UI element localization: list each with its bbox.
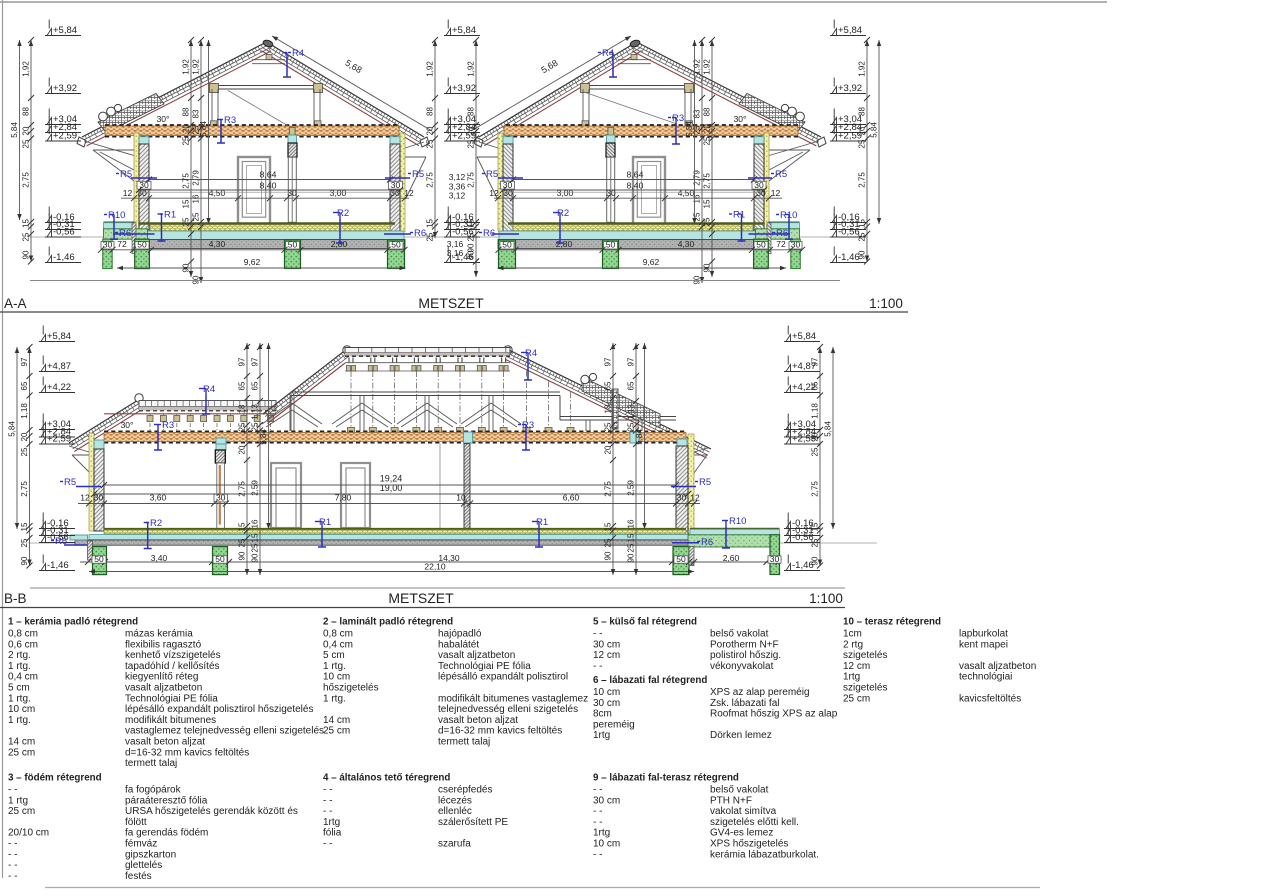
svg-text:R2: R2 xyxy=(557,208,569,219)
svg-text:R2: R2 xyxy=(150,518,162,529)
svg-text:72: 72 xyxy=(776,239,786,249)
svg-text:5,84: 5,84 xyxy=(199,121,208,137)
svg-text:10: 10 xyxy=(456,493,466,503)
svg-text:+4,22: +4,22 xyxy=(792,382,816,393)
svg-text:flexibilis ragasztó: flexibilis ragasztó xyxy=(125,639,202,650)
svg-text:1,18: 1,18 xyxy=(20,403,29,419)
svg-text:vastaglemez telejnedvesség ell: vastaglemez telejnedvesség elleni sziget… xyxy=(125,726,324,737)
svg-text:97: 97 xyxy=(604,357,613,366)
svg-text:83: 83 xyxy=(693,109,702,118)
svg-text:30: 30 xyxy=(606,188,616,198)
svg-text:30: 30 xyxy=(391,180,401,190)
svg-text:25 cm: 25 cm xyxy=(843,693,870,704)
svg-text:2,75: 2,75 xyxy=(182,173,191,189)
svg-text:4,30: 4,30 xyxy=(209,239,226,249)
svg-text:15: 15 xyxy=(604,522,613,531)
svg-text:3,40: 3,40 xyxy=(151,553,168,563)
svg-text:25: 25 xyxy=(22,139,31,148)
svg-text:15: 15 xyxy=(20,522,29,531)
svg-text:30°: 30° xyxy=(734,114,747,124)
svg-text:25: 25 xyxy=(251,543,260,552)
svg-text:2,75: 2,75 xyxy=(811,481,820,497)
svg-text:15: 15 xyxy=(627,533,636,542)
svg-text:30: 30 xyxy=(94,493,104,503)
svg-text:+5,84: +5,84 xyxy=(838,25,862,36)
svg-text:16: 16 xyxy=(251,519,260,528)
svg-text:65: 65 xyxy=(20,381,29,390)
svg-text:10 cm: 10 cm xyxy=(593,839,620,850)
svg-text:10 cm: 10 cm xyxy=(8,704,35,715)
svg-text:9,62: 9,62 xyxy=(244,257,261,267)
svg-text:15: 15 xyxy=(238,522,247,531)
svg-text:50: 50 xyxy=(391,240,401,250)
svg-text:20: 20 xyxy=(604,445,613,454)
svg-text:50: 50 xyxy=(215,554,225,564)
svg-text:8,40: 8,40 xyxy=(627,181,644,191)
svg-text:88: 88 xyxy=(426,107,435,116)
svg-text:termett talaj: termett talaj xyxy=(125,758,177,769)
svg-text:50: 50 xyxy=(137,240,147,250)
svg-text:d=16-32 mm kavics feltöltés: d=16-32 mm kavics feltöltés xyxy=(438,726,562,737)
svg-text:3,16: 3,16 xyxy=(447,248,464,258)
svg-text:5,84: 5,84 xyxy=(8,421,17,437)
svg-text:1,92: 1,92 xyxy=(467,61,476,77)
svg-text:2,60: 2,60 xyxy=(723,553,740,563)
svg-text:fölött: fölött xyxy=(125,817,147,828)
svg-text:25: 25 xyxy=(627,543,636,552)
svg-text:12: 12 xyxy=(123,188,133,198)
svg-text:METSZET: METSZET xyxy=(388,590,454,606)
svg-text:+2,59: +2,59 xyxy=(792,434,816,445)
svg-text:1,92: 1,92 xyxy=(858,61,867,77)
svg-text:gipszkarton: gipszkarton xyxy=(125,849,176,860)
svg-text:2 rtg: 2 rtg xyxy=(843,639,863,650)
svg-text:88: 88 xyxy=(703,107,712,116)
svg-text:-0,56: -0,56 xyxy=(53,227,75,238)
svg-text:0,4 cm: 0,4 cm xyxy=(8,672,38,683)
svg-text:R5: R5 xyxy=(486,169,498,180)
svg-text:2,80: 2,80 xyxy=(556,239,573,249)
svg-text:83: 83 xyxy=(192,109,201,118)
svg-text:22,10: 22,10 xyxy=(424,562,446,572)
svg-text:2,75: 2,75 xyxy=(20,481,29,497)
svg-text:5,84: 5,84 xyxy=(10,122,19,138)
svg-text:25 cm: 25 cm xyxy=(323,726,350,737)
svg-text:3,00: 3,00 xyxy=(557,188,574,198)
svg-text:R2: R2 xyxy=(337,208,349,219)
svg-text:2,75: 2,75 xyxy=(22,172,31,188)
svg-text:fa gerendás födém: fa gerendás födém xyxy=(125,828,208,839)
svg-text:glettelés: glettelés xyxy=(125,860,162,871)
svg-text:25: 25 xyxy=(238,538,247,547)
svg-text:12: 12 xyxy=(690,493,700,503)
svg-text:16: 16 xyxy=(192,194,201,203)
svg-text:-1,46: -1,46 xyxy=(47,560,69,571)
svg-text:30: 30 xyxy=(754,180,764,190)
svg-text:72: 72 xyxy=(117,239,127,249)
svg-text:R3: R3 xyxy=(522,420,534,431)
svg-text:90: 90 xyxy=(251,553,260,562)
svg-text:R3: R3 xyxy=(672,113,684,124)
svg-text:10 – terasz rétegrend: 10 – terasz rétegrend xyxy=(843,617,941,628)
svg-text:-0,56: -0,56 xyxy=(792,532,814,543)
svg-text:vasalt aljzatbeton: vasalt aljzatbeton xyxy=(959,661,1036,672)
svg-text:3 – födém rétegrend: 3 – födém rétegrend xyxy=(8,773,102,784)
svg-text:vasalt aljzatbeton: vasalt aljzatbeton xyxy=(125,683,202,694)
svg-text:0,4 cm: 0,4 cm xyxy=(323,639,353,650)
svg-text:20: 20 xyxy=(238,445,247,454)
svg-text:12: 12 xyxy=(80,493,90,503)
svg-text:3,12: 3,12 xyxy=(449,191,466,201)
svg-text:-1,46: -1,46 xyxy=(53,252,75,263)
svg-text:R4: R4 xyxy=(292,48,304,59)
svg-text:3,00: 3,00 xyxy=(330,188,347,198)
svg-text:5,84: 5,84 xyxy=(870,122,879,138)
svg-text:R10: R10 xyxy=(729,516,746,527)
svg-text:0,8 cm: 0,8 cm xyxy=(323,629,353,640)
svg-text:URSA hőszigetelés gerendák köz: URSA hőszigetelés gerendák között és xyxy=(125,806,298,817)
svg-text:0,6 cm: 0,6 cm xyxy=(8,639,38,650)
svg-text:15: 15 xyxy=(426,219,435,228)
svg-text:R4: R4 xyxy=(525,348,537,359)
svg-text:R5: R5 xyxy=(775,169,787,180)
svg-text:belső vakolat: belső vakolat xyxy=(710,629,769,640)
svg-text:4,30: 4,30 xyxy=(678,239,695,249)
svg-text:lépésálló expandált polisztiro: lépésálló expandált polisztirol hősziget… xyxy=(125,704,313,715)
svg-text:2,75: 2,75 xyxy=(238,481,247,497)
svg-text:5,84: 5,84 xyxy=(824,421,833,437)
svg-text:- -: - - xyxy=(593,806,602,817)
svg-text:97: 97 xyxy=(627,357,636,366)
svg-text:90: 90 xyxy=(238,551,247,560)
svg-text:R6: R6 xyxy=(701,537,713,548)
svg-text:12 cm: 12 cm xyxy=(593,650,620,661)
svg-text:25: 25 xyxy=(20,538,29,547)
svg-text:lapburkolat: lapburkolat xyxy=(959,629,1008,640)
svg-text:- -: - - xyxy=(593,629,602,640)
svg-text:B-B: B-B xyxy=(4,591,27,606)
svg-text:90: 90 xyxy=(693,275,702,284)
svg-text:90: 90 xyxy=(192,275,201,284)
svg-text:Zsk. lábazati fal: Zsk. lábazati fal xyxy=(710,698,779,709)
svg-text:18: 18 xyxy=(238,404,247,413)
svg-text:1,92: 1,92 xyxy=(703,59,712,75)
svg-text:PTH N+F: PTH N+F xyxy=(710,795,752,806)
svg-text:1:100: 1:100 xyxy=(809,591,843,606)
svg-text:20: 20 xyxy=(703,124,712,133)
svg-text:30: 30 xyxy=(677,493,687,503)
svg-text:R1: R1 xyxy=(536,517,548,528)
svg-text:12 cm: 12 cm xyxy=(843,661,870,672)
svg-text:1,13: 1,13 xyxy=(251,404,260,420)
svg-text:+5,84: +5,84 xyxy=(792,331,816,342)
svg-text:termett talaj: termett talaj xyxy=(438,737,490,748)
svg-text:1rtg: 1rtg xyxy=(843,672,860,683)
svg-text:30 cm: 30 cm xyxy=(593,639,620,650)
svg-text:30: 30 xyxy=(103,240,113,250)
svg-text:-1,46: -1,46 xyxy=(792,560,814,571)
svg-text:hajópadló: hajópadló xyxy=(438,629,482,640)
svg-text:50: 50 xyxy=(606,240,616,250)
svg-text:12: 12 xyxy=(771,188,781,198)
svg-text:25: 25 xyxy=(426,139,435,148)
svg-text:2,79: 2,79 xyxy=(192,170,201,186)
svg-text:50: 50 xyxy=(94,554,104,564)
svg-text:tapadóhíd / kellősítés: tapadóhíd / kellősítés xyxy=(125,661,220,672)
svg-text:fa fogópárok: fa fogópárok xyxy=(125,785,182,796)
svg-text:15: 15 xyxy=(22,219,31,228)
svg-text:6 – lábazati fal rétegrend: 6 – lábazati fal rétegrend xyxy=(593,675,707,686)
svg-text:fólia: fólia xyxy=(323,828,342,839)
svg-text:1:100: 1:100 xyxy=(869,296,903,311)
svg-text:1 rtg.: 1 rtg. xyxy=(8,693,31,704)
svg-text:50: 50 xyxy=(676,554,686,564)
svg-text:90: 90 xyxy=(182,263,191,272)
svg-text:5 – külső fal rétegrend: 5 – külső fal rétegrend xyxy=(593,617,697,628)
svg-text:+3,92: +3,92 xyxy=(452,83,476,94)
svg-text:- -: - - xyxy=(323,785,332,796)
svg-text:kiegyenlítő réteg: kiegyenlítő réteg xyxy=(125,672,198,683)
svg-text:65: 65 xyxy=(238,381,247,390)
svg-text:- -: - - xyxy=(593,849,602,860)
svg-text:GV4-es lemez: GV4-es lemez xyxy=(710,828,773,839)
svg-text:19,24: 19,24 xyxy=(380,474,403,484)
svg-text:1 rtg: 1 rtg xyxy=(8,795,28,806)
svg-text:R4: R4 xyxy=(203,384,215,395)
svg-text:R10: R10 xyxy=(108,210,125,221)
svg-text:2,79: 2,79 xyxy=(693,170,702,186)
svg-text:+5,84: +5,84 xyxy=(452,25,476,36)
svg-text:50: 50 xyxy=(288,240,298,250)
svg-text:+3,92: +3,92 xyxy=(53,83,77,94)
svg-text:65: 65 xyxy=(604,381,613,390)
svg-text:25: 25 xyxy=(182,136,191,145)
svg-text:2,59: 2,59 xyxy=(251,480,260,496)
svg-text:5,84: 5,84 xyxy=(259,429,268,445)
svg-text:páraáteresztő fólia: páraáteresztő fólia xyxy=(125,795,208,806)
svg-text:8,64: 8,64 xyxy=(260,170,277,180)
svg-text:12: 12 xyxy=(404,188,414,198)
svg-text:1 rtg.: 1 rtg. xyxy=(8,661,31,672)
svg-text:- -: - - xyxy=(8,785,17,796)
svg-text:+5,84: +5,84 xyxy=(53,25,77,36)
svg-text:10 cm: 10 cm xyxy=(323,672,350,683)
svg-text:20: 20 xyxy=(20,432,29,441)
svg-text:97: 97 xyxy=(238,357,247,366)
svg-text:habalátét: habalátét xyxy=(438,639,479,650)
svg-text:belső vakolat: belső vakolat xyxy=(710,785,769,796)
svg-text:65: 65 xyxy=(627,381,636,390)
svg-text:vasalt beton aljzat: vasalt beton aljzat xyxy=(125,737,205,748)
svg-text:- -: - - xyxy=(593,817,602,828)
svg-text:A-A: A-A xyxy=(4,296,27,311)
svg-text:14 cm: 14 cm xyxy=(8,737,35,748)
svg-text:2,75: 2,75 xyxy=(858,172,867,188)
svg-text:R3: R3 xyxy=(162,420,174,431)
svg-text:R5: R5 xyxy=(699,477,711,488)
svg-text:30 cm: 30 cm xyxy=(593,698,620,709)
svg-text:+4,87: +4,87 xyxy=(47,361,71,372)
svg-text:- -: - - xyxy=(8,860,17,871)
svg-text:lécezés: lécezés xyxy=(438,795,472,806)
svg-text:30°: 30° xyxy=(157,114,170,124)
svg-text:XPS hőszigetelés: XPS hőszigetelés xyxy=(710,839,788,850)
svg-text:2,75: 2,75 xyxy=(426,172,435,188)
svg-text:1rtg: 1rtg xyxy=(593,730,610,741)
svg-text:-0,56: -0,56 xyxy=(838,227,860,238)
svg-text:vasalt beton aljzat: vasalt beton aljzat xyxy=(438,715,518,726)
svg-text:90: 90 xyxy=(703,263,712,272)
svg-text:Roofmat hőszig XPS az alap: Roofmat hőszig XPS az alap xyxy=(710,709,838,720)
svg-text:szigetelés: szigetelés xyxy=(843,650,887,661)
svg-text:25: 25 xyxy=(238,422,247,431)
svg-text:2,75: 2,75 xyxy=(467,172,476,188)
svg-text:R1: R1 xyxy=(733,210,745,221)
svg-text:2,80: 2,80 xyxy=(331,239,348,249)
svg-text:2,75: 2,75 xyxy=(604,481,613,497)
svg-text:25: 25 xyxy=(604,538,613,547)
svg-text:25: 25 xyxy=(811,447,820,456)
svg-text:25: 25 xyxy=(22,232,31,241)
svg-text:4,50: 4,50 xyxy=(209,188,226,198)
svg-text:METSZET: METSZET xyxy=(418,295,484,311)
svg-text:7,80: 7,80 xyxy=(335,493,352,503)
svg-text:88: 88 xyxy=(182,107,191,116)
svg-text:-1,46: -1,46 xyxy=(838,252,860,263)
svg-text:90: 90 xyxy=(627,553,636,562)
svg-text:1,92: 1,92 xyxy=(426,61,435,77)
svg-text:2 rtg.: 2 rtg. xyxy=(8,650,31,661)
svg-text:d=16-32 mm kavics feltöltés: d=16-32 mm kavics feltöltés xyxy=(125,747,249,758)
svg-text:R3: R3 xyxy=(224,115,236,126)
svg-text:+5,84: +5,84 xyxy=(47,331,71,342)
svg-text:kerámia lábazatburkolat.: kerámia lábazatburkolat. xyxy=(710,849,819,860)
svg-text:R1: R1 xyxy=(319,517,331,528)
svg-text:R5: R5 xyxy=(120,169,132,180)
svg-text:16: 16 xyxy=(627,519,636,528)
svg-text:3,12: 3,12 xyxy=(449,172,466,182)
svg-text:+2,59: +2,59 xyxy=(838,131,862,142)
svg-text:+3,92: +3,92 xyxy=(838,83,862,94)
svg-text:1 rtg.: 1 rtg. xyxy=(323,661,346,672)
svg-text:2,75: 2,75 xyxy=(703,173,712,189)
svg-text:20: 20 xyxy=(426,126,435,135)
svg-text:8,64: 8,64 xyxy=(627,170,644,180)
svg-text:2 – laminált padló rétegrend: 2 – laminált padló rétegrend xyxy=(323,617,453,628)
svg-text:kent mapei: kent mapei xyxy=(959,639,1008,650)
svg-text:8cm: 8cm xyxy=(593,709,612,720)
svg-text:97: 97 xyxy=(251,357,260,366)
svg-text:vasalt aljzatbeton: vasalt aljzatbeton xyxy=(438,650,515,661)
svg-text:+2,59: +2,59 xyxy=(452,131,476,142)
svg-text:1 rtg.: 1 rtg. xyxy=(323,693,346,704)
svg-text:festés: festés xyxy=(125,871,152,882)
svg-text:30 cm: 30 cm xyxy=(593,795,620,806)
svg-text:25 cm: 25 cm xyxy=(8,806,35,817)
svg-text:90: 90 xyxy=(22,250,31,259)
svg-text:technológiai: technológiai xyxy=(959,672,1012,683)
svg-text:XPS az alap pereméig: XPS az alap pereméig xyxy=(710,687,810,698)
svg-text:25: 25 xyxy=(182,217,191,226)
svg-text:16: 16 xyxy=(693,194,702,203)
svg-text:88: 88 xyxy=(22,107,31,116)
svg-text:90: 90 xyxy=(20,556,29,565)
svg-text:hőszigetelés: hőszigetelés xyxy=(323,683,379,694)
svg-text:30°: 30° xyxy=(121,420,134,430)
svg-text:cserépfedés: cserépfedés xyxy=(438,785,492,796)
svg-text:- -: - - xyxy=(323,806,332,817)
svg-text:10 cm: 10 cm xyxy=(593,687,620,698)
svg-text:3,60: 3,60 xyxy=(150,493,167,503)
svg-text:vakolat simítva: vakolat simítva xyxy=(710,806,777,817)
svg-text:50: 50 xyxy=(502,240,512,250)
svg-text:telejnedvesség elleni szigetel: telejnedvesség elleni szigetelés xyxy=(438,704,578,715)
svg-text:vékonyvakolat: vékonyvakolat xyxy=(710,661,774,672)
svg-text:1,18: 1,18 xyxy=(811,403,820,419)
svg-text:ellenléc: ellenléc xyxy=(438,806,472,817)
svg-text:+4,87: +4,87 xyxy=(792,361,816,372)
svg-text:1rtg: 1rtg xyxy=(593,828,610,839)
svg-text:R5: R5 xyxy=(64,477,76,488)
svg-text:15: 15 xyxy=(182,199,191,208)
svg-text:25 cm: 25 cm xyxy=(8,747,35,758)
svg-text:Dörken lemez: Dörken lemez xyxy=(710,730,772,741)
svg-text:90: 90 xyxy=(604,551,613,560)
svg-text:polistirol hőszig.: polistirol hőszig. xyxy=(710,650,781,661)
svg-text:kenhető vízszigetelés: kenhető vízszigetelés xyxy=(125,650,221,661)
svg-text:0,8 cm: 0,8 cm xyxy=(8,629,38,640)
svg-text:modifikált bitumenes vastaglem: modifikált bitumenes vastaglemez xyxy=(438,693,588,704)
svg-text:12: 12 xyxy=(489,188,499,198)
svg-text:5,84: 5,84 xyxy=(635,429,644,445)
svg-text:R5: R5 xyxy=(412,169,424,180)
svg-text:15: 15 xyxy=(703,199,712,208)
svg-text:+2,59: +2,59 xyxy=(53,131,77,142)
svg-text:Technológiai PE fólia: Technológiai PE fólia xyxy=(438,661,531,672)
svg-text:5 cm: 5 cm xyxy=(8,683,30,694)
svg-text:- -: - - xyxy=(593,661,602,672)
svg-text:pereméig: pereméig xyxy=(593,719,635,730)
svg-text:25: 25 xyxy=(703,136,712,145)
svg-text:2,59: 2,59 xyxy=(627,480,636,496)
svg-text:szarufa: szarufa xyxy=(438,839,471,850)
svg-text:25: 25 xyxy=(426,232,435,241)
svg-text:-0,56: -0,56 xyxy=(452,227,474,238)
svg-text:20/10 cm: 20/10 cm xyxy=(8,828,49,839)
svg-text:1,92: 1,92 xyxy=(182,59,191,75)
svg-text:25: 25 xyxy=(192,212,201,221)
svg-text:- -: - - xyxy=(323,839,332,850)
svg-text:19,00: 19,00 xyxy=(380,483,403,493)
svg-text:1,92: 1,92 xyxy=(22,61,31,77)
svg-text:szálerősített PE: szálerősített PE xyxy=(438,817,508,828)
svg-text:- -: - - xyxy=(323,795,332,806)
svg-text:R6: R6 xyxy=(414,228,426,239)
svg-text:25: 25 xyxy=(604,422,613,431)
svg-text:- -: - - xyxy=(8,871,17,882)
svg-text:18: 18 xyxy=(604,404,613,413)
svg-text:4 – általános tető téregrend: 4 – általános tető téregrend xyxy=(323,773,450,784)
svg-text:Technológiai PE fólia: Technológiai PE fólia xyxy=(125,693,218,704)
svg-text:mázas kerámia: mázas kerámia xyxy=(125,629,193,640)
svg-text:modifikált bitumenes: modifikált bitumenes xyxy=(125,715,216,726)
svg-text:8,40: 8,40 xyxy=(260,181,277,191)
svg-text:- -: - - xyxy=(593,785,602,796)
svg-text:9 – lábazati fal-terasz réteg: 9 – lábazati fal-terasz rétegrend xyxy=(593,773,739,784)
svg-text:97: 97 xyxy=(20,357,29,366)
svg-text:1,92: 1,92 xyxy=(693,59,702,75)
svg-text:1 rtg.: 1 rtg. xyxy=(8,715,31,726)
